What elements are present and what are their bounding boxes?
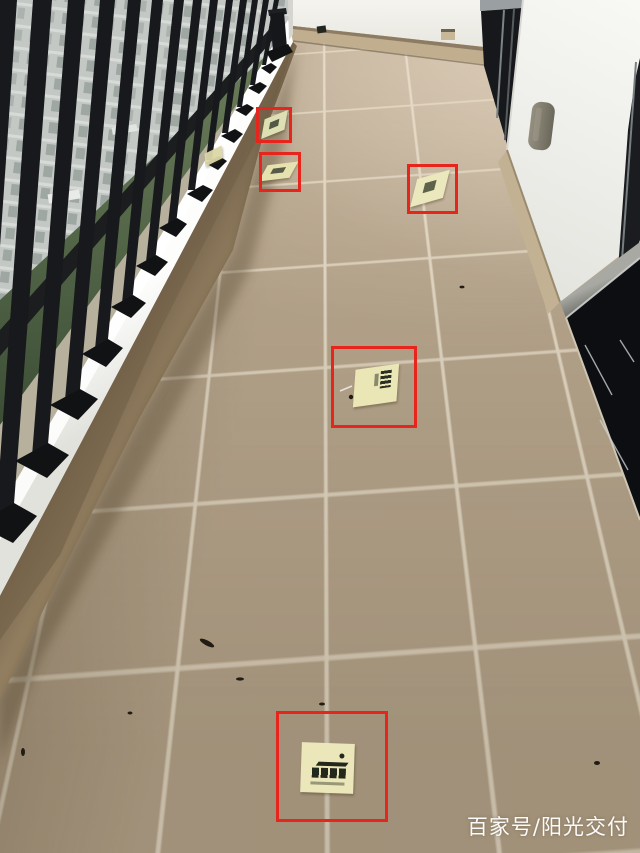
right-side — [498, 0, 640, 520]
watermark-text: 百家号/阳光交付 — [467, 811, 629, 841]
small-bracket — [317, 25, 327, 33]
balcony-photo: 百家号/阳光交付 — [0, 0, 640, 853]
annotation-box-2 — [259, 152, 301, 192]
annotation-box-3 — [407, 164, 458, 214]
annotation-box-4 — [331, 346, 417, 428]
annotation-box-1 — [256, 107, 292, 143]
annotation-box-5 — [276, 711, 388, 822]
small-box — [441, 32, 455, 40]
far-wall — [288, 0, 489, 65]
